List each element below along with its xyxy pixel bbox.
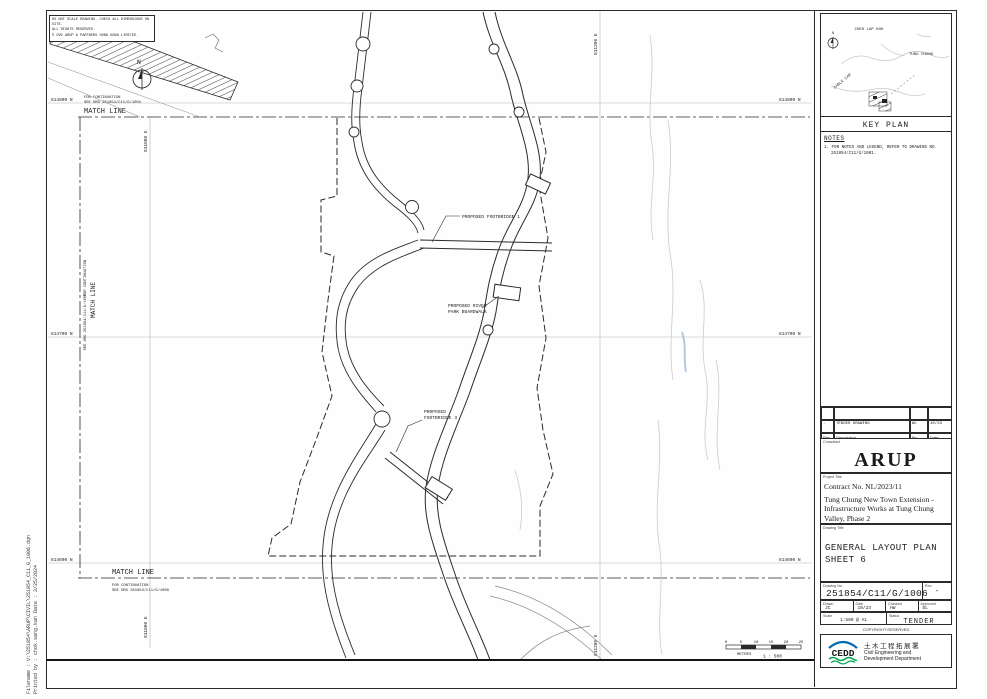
revision-row-rev: - [821,420,834,433]
match-line-labels: MATCH LINE FOR CONTINUATION SEE DRG 2518… [83,96,170,593]
consultant-label: Consultant [821,439,951,444]
grid-labels: 814800 N 814800 N 814700 N 814700 N 8146… [51,33,801,656]
footbridge3-label-line1: PROPOSED [424,409,446,415]
boardwalk-annotation: PROPOSED RIVER PARK BOARDWALK [448,296,499,315]
consultant-box: Consultant ARUP [820,438,952,473]
scale-tick-25: 25 [799,641,804,645]
key-plan-label-cable-car: CABLE CAR [833,73,853,90]
date-value: 10/23 [858,606,886,611]
match-lines [78,117,810,578]
scale-tick-0: 0 [725,641,728,645]
key-plan-map: N CHEK LAP KOK TUNG CHUNG CABLE CAR [821,14,951,116]
copyright-note: COPYRIGHT RESERVED [820,627,952,632]
disclaimer-line3: © OVE ARUP & PARTNERS HONG KONG LIMITED. [52,34,152,39]
drawing-number-box: Drawing No. 251854/C11/G/1006 Rev. - [820,582,952,600]
notes-heading: NOTES [824,135,948,142]
department-name-english-line2: Development Department [864,656,921,662]
terrain-contours [515,35,720,655]
match-line-label-bottom: MATCH LINE [112,569,154,577]
grid-label-n1-right: 814800 N [779,97,801,103]
grid-label-n2-right: 814700 N [779,331,801,337]
continuation-bottom-line2: SEE DRG 251854/C11/G/1008 [112,588,170,593]
department-box: CEDD 土木工程拓展署 Civil Engineering and Devel… [820,634,952,668]
revision-row-description: TENDER DRAWING [834,420,910,433]
date-cell: Date 10/23 [854,601,887,611]
disclaimer-box: DO NOT SCALE DRAWING. CHECK ALL DIMENSIO… [49,15,155,42]
revision-empty-by [910,407,928,420]
drawing-title-line1: GENERAL LAYOUT PLAN [825,542,951,554]
approved-value: DL [923,606,951,611]
status-value: TENDER [887,618,951,626]
key-plan-north-label: N [832,32,834,36]
department-text: 土木工程拓展署 Civil Engineering and Developmen… [864,640,921,662]
title-block: N CHEK LAP KOK TUNG CHUNG CABLE CAR KEY … [814,10,956,687]
grid-label-n3-right: 814600 N [779,557,801,563]
checked-cell: Checked HW [886,601,919,611]
continuation-left-line1: FOR CONTINUATION [84,260,88,296]
project-name-line1: Tung Chung New Town Extension - [824,495,951,505]
approved-cell: Approved DL [919,601,951,611]
tree-node-circles [349,37,524,427]
key-plan-coastline [831,34,949,96]
scale-bar-unit: METRES [737,653,752,657]
scale-value: 1:500 @ A1 [821,618,886,623]
key-plan-site-marker [869,74,916,111]
boardwalk-label-line1: PROPOSED RIVER [448,303,487,309]
key-plan-north-arrow: N [828,32,838,49]
disclaimer-line1: DO NOT SCALE DRAWING. CHECK ALL DIMENSIO… [52,18,152,28]
scale-tick-10: 10 [754,641,759,645]
status-cell: Status TENDER [887,613,951,624]
drawing-sheet: 814800 N 814800 N 814700 N 814700 N 8146… [0,0,987,699]
key-plan-label-airport: CHEK LAP KOK [855,28,884,32]
cedd-logo: CEDD [825,637,861,665]
signoff-row: Drawn JC Date 10/23 Checked HW Approved … [820,600,952,612]
drawing-title-box: Drawing Title GENERAL LAYOUT PLAN SHEET … [820,524,952,582]
note-1-line2: 251854/C11/G/1001. [831,151,948,157]
department-name-chinese: 土木工程拓展署 [864,640,921,650]
revision-row-by: WL [910,420,928,433]
revision-empty-desc [834,407,910,420]
match-line-label-top: MATCH LINE [84,108,126,116]
footbridge3-label-line2: FOOTBRIDGE 3 [424,415,457,421]
grid-label-e1-top: 811000 E [143,130,149,152]
key-plan-box: N CHEK LAP KOK TUNG CHUNG CABLE CAR KEY … [820,13,952,134]
drawing-number-value: 251854/C11/G/1006 [826,588,922,599]
drawn-cell: Drawn JC [821,601,854,611]
scale-cell: Scale 1:500 @ A1 [821,613,887,624]
contract-number: Contract No. NL/2023/11 [824,482,951,492]
revision-row-date: 10/23 [928,420,952,433]
plot-stamp: Filename : V:\251854\ARUP\CIVIL\251854_C… [26,509,40,694]
drawing-rev-value: - [923,588,951,596]
survey-grid [48,12,812,658]
consultant-logo: ARUP [821,449,951,472]
footbridge3-annotation: PROPOSED FOOTBRIDGE 3 [396,409,457,452]
revision-empty-rev [821,407,834,420]
grid-label-e1-bottom: 811000 E [143,616,149,638]
scale-bar: 0 5 10 15 20 25 METRES 1 : 500 [725,641,804,660]
plan-frame-bottom-line [46,659,815,661]
drawing-title-label: Drawing Title [821,525,951,530]
grid-label-e2-top: 811200 E [593,33,599,55]
project-name-line3: Valley, Phase 2 [824,514,951,524]
scale-tick-20: 20 [784,641,789,645]
grid-label-n3-left: 814600 N [51,557,73,563]
grid-label-n1-left: 814800 N [51,97,73,103]
revision-empty-date [928,407,952,420]
continuation-top-line2: SEE DRG 251854/C11/G/1004 [84,100,142,105]
continuation-left-line2: SEE DRG 251854/C11/G/1005 [83,293,88,351]
notes-box: NOTES 1. FOR NOTES AND LEGEND, REFER TO … [820,131,952,416]
park-walkways [323,12,424,658]
checked-value: HW [890,606,918,611]
stream-mark [682,332,686,372]
drawing-number-cell: Drawing No. 251854/C11/G/1006 [821,583,923,599]
project-name-line2: Infrastructure Works at Tung Chung [824,504,951,514]
drawn-value: JC [825,606,853,611]
drawing-rev-cell: Rev. - [923,583,951,599]
footbridge-1 [420,240,552,251]
project-title-label: Project Title [821,474,951,479]
project-title-box: Project Title Contract No. NL/2023/11 Tu… [820,473,952,524]
drawing-title-line2: SHEET 6 [825,554,951,566]
boardwalk-label-line2: PARK BOARDWALK [448,309,487,315]
continuation-top-line1: FOR CONTINUATION [84,96,120,100]
key-plan-label-town: TUNG CHUNG [909,53,934,57]
plot-stamp-filename: Filename : V:\251854\ARUP\CIVIL\251854_C… [26,509,33,694]
scale-status-row: Scale 1:500 @ A1 Status TENDER [820,612,952,625]
continuation-bottom-line1: FOR CONTINUATION [112,584,148,588]
scale-tick-15: 15 [769,641,774,645]
plot-stamp-printed-by: Printed by : chok.sang.kan Date : 3/25/2… [33,509,40,694]
footbridge1-annotation: PROPOSED FOOTBRIDGE 1 [432,214,520,242]
grid-label-n2-left: 814700 N [51,331,73,337]
footbridge1-label: PROPOSED FOOTBRIDGE 1 [462,214,520,220]
match-line-label-left: MATCH LINE [90,282,97,318]
scale-tick-5: 5 [740,641,743,645]
